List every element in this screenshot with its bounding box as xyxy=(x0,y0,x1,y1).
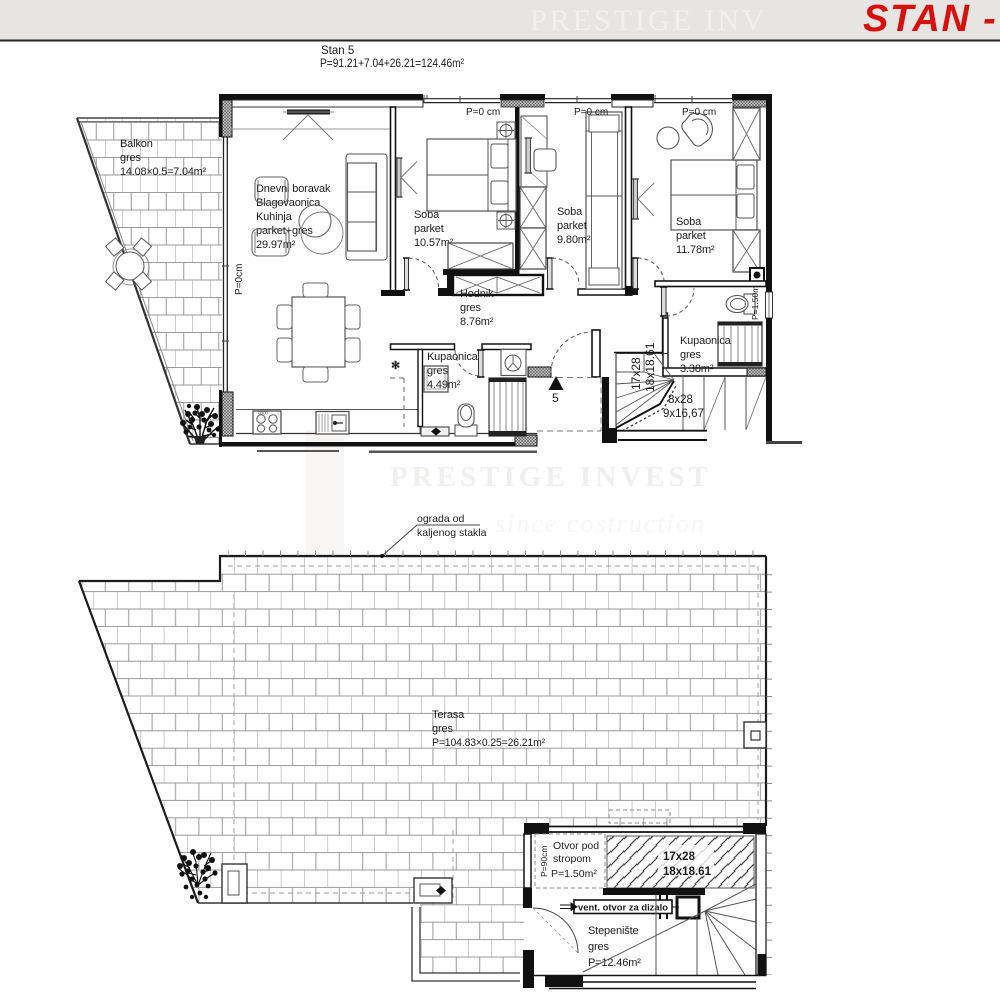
svg-text:P=0 cm: P=0 cm xyxy=(682,107,716,118)
svg-text:Soba: Soba xyxy=(557,206,583,218)
svg-text:Dnevni boravak: Dnevni boravak xyxy=(256,183,331,195)
svg-text:Balkon: Balkon xyxy=(120,138,153,150)
svg-text:P=1.50m: P=1.50m xyxy=(750,286,760,320)
svg-text:vent. otvor za dizalo: vent. otvor za dizalo xyxy=(578,903,668,914)
svg-text:P=91.21+7.04+26.21=124.46m²: P=91.21+7.04+26.21=124.46m² xyxy=(320,56,464,70)
svg-text:11.78m²: 11.78m² xyxy=(676,244,715,256)
svg-text:Otvor pod: Otvor pod xyxy=(553,840,599,852)
svg-text:Terasa: Terasa xyxy=(432,709,465,721)
svg-text:stropom: stropom xyxy=(553,853,591,865)
svg-text:17x28: 17x28 xyxy=(629,357,643,390)
svg-text:Kupaonica: Kupaonica xyxy=(427,351,479,363)
svg-text:gres: gres xyxy=(120,152,141,164)
svg-text:parket: parket xyxy=(676,230,706,242)
svg-text:P=1.50m²: P=1.50m² xyxy=(551,868,597,880)
svg-text:✻: ✻ xyxy=(391,360,400,372)
svg-text:P=90cm: P=90cm xyxy=(539,846,549,877)
svg-text:8x28: 8x28 xyxy=(668,394,693,406)
svg-text:gres: gres xyxy=(680,349,701,361)
svg-text:P=104.83×0.25=26.21m²: P=104.83×0.25=26.21m² xyxy=(432,737,545,749)
svg-text:STAN - 5: STAN - 5 xyxy=(863,0,1000,40)
svg-text:P=12.46m²: P=12.46m² xyxy=(588,957,641,969)
svg-text:3.38m²: 3.38m² xyxy=(680,363,714,375)
svg-text:PRESTIGE INVEST: PRESTIGE INVEST xyxy=(390,461,712,493)
svg-text:ograda od: ograda od xyxy=(417,513,464,525)
svg-text:P=0cm: P=0cm xyxy=(234,264,245,295)
svg-text:0000: 0000 xyxy=(258,411,269,416)
svg-text:parket: parket xyxy=(414,223,444,235)
svg-text:9.80m²: 9.80m² xyxy=(557,234,591,246)
svg-text:Stepenište: Stepenište xyxy=(588,925,639,937)
svg-text:kaljenog stakla: kaljenog stakla xyxy=(417,527,487,539)
svg-text:18x18.61: 18x18.61 xyxy=(643,342,657,392)
svg-text:Kuhinja: Kuhinja xyxy=(256,211,293,223)
svg-text:gres: gres xyxy=(460,302,481,314)
svg-text:29.97m²: 29.97m² xyxy=(256,239,296,251)
svg-text:PRESTIGE INV: PRESTIGE INV xyxy=(530,4,767,37)
svg-text:since costruction: since costruction xyxy=(495,509,706,538)
svg-text:P=0 cm: P=0 cm xyxy=(466,107,500,118)
svg-text:Kupaonica: Kupaonica xyxy=(680,335,732,347)
svg-text:P=0 cm: P=0 cm xyxy=(574,107,608,118)
svg-text:gres: gres xyxy=(588,941,609,953)
svg-text:18x18.61: 18x18.61 xyxy=(663,866,712,878)
svg-text:gres: gres xyxy=(432,723,453,735)
svg-text:14.08×0.5=7.04m²: 14.08×0.5=7.04m² xyxy=(120,166,206,178)
svg-text:parket: parket xyxy=(557,220,587,232)
svg-text:8.76m²: 8.76m² xyxy=(460,316,494,328)
svg-text:Soba: Soba xyxy=(676,216,702,228)
svg-text:17x28: 17x28 xyxy=(663,851,696,863)
svg-text:Hodnik: Hodnik xyxy=(460,288,494,300)
svg-text:parket+gres: parket+gres xyxy=(256,225,313,237)
svg-text:9x16,67: 9x16,67 xyxy=(663,408,704,420)
svg-text:5: 5 xyxy=(552,391,559,405)
